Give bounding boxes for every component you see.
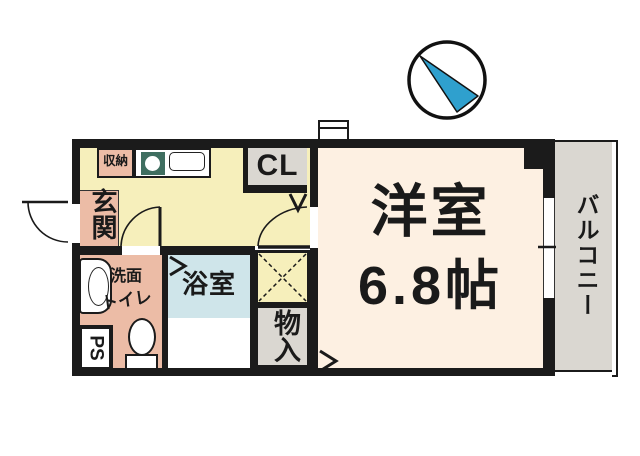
balcony-rail (612, 140, 618, 377)
entrance-label: 玄関 (86, 188, 116, 250)
wall-bath-right (250, 246, 255, 368)
western-room-size-label: 6.8帖 (318, 258, 543, 315)
kitchen-sink-bowl (145, 156, 160, 171)
kitchen-worktop (169, 152, 205, 171)
wall-top (72, 139, 549, 148)
wall-closet-bottom (243, 185, 307, 193)
western-room-label: 洋室 (318, 183, 543, 243)
wall-bottom (72, 368, 555, 376)
appliance-space-box (255, 250, 310, 305)
storage-closet-label: 物入 (267, 309, 299, 367)
entrance-door-swing (22, 202, 68, 242)
wall-left-upper (72, 139, 80, 204)
balcony-label: バルコニー (568, 193, 598, 345)
floor-plan: 収納 CL 玄関 洗面 トイレ 浴室 PS 物入 洋室 6.8帖 バルコニー (0, 0, 640, 456)
balcony-window (543, 198, 555, 298)
compass-icon (409, 42, 485, 118)
pipe-space-label: PS (79, 333, 113, 364)
bathroom-label: 浴室 (168, 271, 250, 298)
wall-right-lower (543, 298, 555, 368)
wall-wetarea-top (160, 246, 255, 255)
toilet-bowl (128, 318, 156, 356)
washroom-label: 洗面 (110, 269, 160, 286)
closet-label: CL (248, 150, 307, 182)
top-wall-vent-line (320, 127, 347, 129)
top-wall-vent-box (318, 120, 349, 141)
storage-label: 収納 (97, 155, 134, 168)
wall-room-divider-upper (310, 148, 318, 207)
wall-bath-left (162, 246, 168, 368)
wall-right-upper (543, 139, 555, 198)
wall-room-divider-lower (310, 248, 318, 368)
